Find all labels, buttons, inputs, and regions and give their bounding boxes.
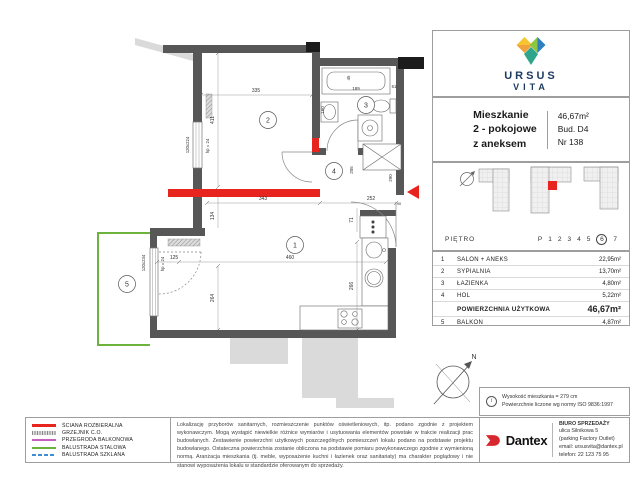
table-row: 4 HOL 5,22m² — [433, 290, 629, 302]
north-label: N — [471, 354, 476, 361]
apartment-info-box: Mieszkanie 2 - pokojowe z aneksem 46,67m… — [432, 97, 630, 162]
entrance-arrow — [407, 185, 419, 199]
table-row: 3 ŁAZIENKA 4,80m² — [433, 278, 629, 290]
floor-selector-row: PIĘTRO P 1 2 3 4 5 6 7 — [433, 234, 629, 245]
room-4-label: 4 — [332, 169, 336, 176]
svg-text:61: 61 — [392, 84, 397, 89]
svg-text:hp = 24: hp = 24 — [160, 256, 165, 271]
apartment-area: 46,67m² — [558, 110, 589, 123]
svg-text:266: 266 — [349, 282, 355, 291]
removable-walls — [168, 138, 320, 197]
svg-text:290: 290 — [388, 174, 393, 182]
room-table: 1 SALON + ANEKS 22,95m² 2 SYPIALNIA 13,7… — [432, 251, 630, 326]
dantex-logo: Dantex — [480, 433, 552, 448]
sales-office-info: BIURO SPRZEDAŻY ulica Silnikowa 5 (parki… — [553, 421, 623, 459]
legend-box: ŚCIANA ROZBIERALNA GRZEJNIK C.O. PRZEGRO… — [25, 417, 171, 463]
hall-wardrobe — [363, 144, 401, 170]
svg-text:343: 343 — [259, 196, 268, 202]
brand-name-ursus: URSUS — [504, 70, 558, 82]
floor-p: P — [538, 236, 542, 243]
svg-text:460: 460 — [286, 255, 295, 261]
mini-compass-icon — [460, 171, 475, 186]
room-5-label: 5 — [125, 282, 129, 289]
floor-2: 2 — [558, 236, 562, 243]
brand-name-vita: VITA — [513, 82, 549, 92]
room-3-label: 3 — [364, 103, 368, 110]
floor-label: PIĘTRO — [445, 236, 475, 243]
disclaimer-box: Lokalizację przyborów sanitarnych, rozmi… — [170, 417, 480, 463]
svg-text:160: 160 — [320, 106, 325, 114]
svg-text:45: 45 — [346, 75, 351, 80]
legend-item: PRZEGRODA BALKONOWA — [32, 437, 164, 444]
info-icon: i — [486, 396, 497, 407]
apartment-building: Bud. D4 — [558, 123, 589, 136]
room-2-label: 2 — [266, 118, 270, 125]
floor-6-active: 6 — [596, 234, 607, 245]
floor-plan-drawing: 335 411 343 252 134 125 460 264 71 266 2… — [28, 16, 432, 416]
floor-7: 7 — [613, 236, 617, 243]
svg-text:205: 205 — [349, 166, 354, 174]
room-1-label: 1 — [293, 243, 297, 250]
steel-rail-swatch — [32, 447, 56, 449]
removable-wall-swatch — [32, 424, 56, 427]
svg-text:120x234: 120x234 — [141, 254, 146, 271]
floor-1: 1 — [548, 236, 552, 243]
legend-item: BALUSTRADA SZKLANA — [32, 452, 164, 459]
floor-list: P 1 2 3 4 5 6 7 — [538, 234, 617, 245]
compass-rose: N — [426, 348, 480, 410]
svg-text:189: 189 — [352, 86, 360, 91]
table-row: 1 SALON + ANEKS 22,95m² — [433, 254, 629, 266]
svg-text:411: 411 — [210, 116, 216, 124]
apartment-number: Nr 138 — [558, 136, 589, 149]
floor-3: 3 — [568, 236, 572, 243]
floorplan-sheet: { "brand": { "name_line1": "URSUS", "nam… — [0, 0, 640, 480]
site-plan-map — [433, 163, 629, 225]
svg-text:hp = 24: hp = 24 — [205, 138, 210, 153]
dantex-logo-text: Dantex — [506, 433, 548, 448]
floor-plan: 335 411 343 252 134 125 460 264 71 266 2… — [28, 16, 432, 416]
balcony-partition-swatch — [32, 439, 56, 441]
dealer-box: Dantex BIURO SPRZEDAŻY ulica Silnikowa 5… — [479, 417, 630, 463]
apartment-title: Mieszkanie 2 - pokojowe z aneksem — [473, 108, 537, 151]
divider — [547, 111, 548, 149]
svg-text:134: 134 — [210, 212, 216, 221]
dantex-logo-icon — [485, 433, 503, 448]
svg-text:252: 252 — [367, 196, 376, 202]
svg-text:120x224: 120x224 — [185, 136, 190, 153]
radiator-swatch — [32, 431, 56, 435]
table-row: 2 SYPIALNIA 13,70m² — [433, 266, 629, 278]
disclaimer-text: Lokalizację przyborów sanitarnych, rozmi… — [177, 421, 473, 470]
legend-item: BALUSTRADA STALOWA — [32, 444, 164, 451]
note-text: Wysokość mieszkania = 279 cm Powierzchni… — [502, 394, 613, 410]
ursus-vita-heart-icon — [511, 35, 551, 67]
height-note-box: i Wysokość mieszkania = 279 cm Powierzch… — [479, 387, 630, 416]
svg-text:71: 71 — [349, 217, 355, 223]
radiators — [168, 94, 212, 246]
balcony-door-window — [150, 248, 158, 316]
glass-rail-swatch — [32, 454, 56, 456]
north-arrow-icon — [464, 361, 472, 369]
kitchen-fixtures — [300, 216, 388, 330]
table-balcony-row: 5 BALKON 4,87m² — [433, 317, 629, 328]
legend-item: GRZEJNIK C.O. — [32, 429, 164, 436]
svg-text:125: 125 — [170, 255, 179, 261]
highlighted-unit-marker — [548, 181, 557, 190]
svg-text:90: 90 — [397, 201, 402, 206]
legend-item: ŚCIANA ROZBIERALNA — [32, 422, 164, 429]
site-plan-box: PIĘTRO P 1 2 3 4 5 6 7 — [432, 162, 630, 251]
apartment-meta: 46,67m² Bud. D4 Nr 138 — [558, 110, 589, 150]
bedroom-window — [193, 122, 202, 168]
floor-5: 5 — [587, 236, 591, 243]
brand-logo-box: URSUS VITA — [432, 30, 630, 97]
table-total-row: POWIERZCHNIA UŻYTKOWA 46,67m² — [433, 302, 629, 317]
svg-text:335: 335 — [252, 88, 261, 94]
floor-4: 4 — [577, 236, 581, 243]
svg-text:264: 264 — [210, 294, 216, 303]
